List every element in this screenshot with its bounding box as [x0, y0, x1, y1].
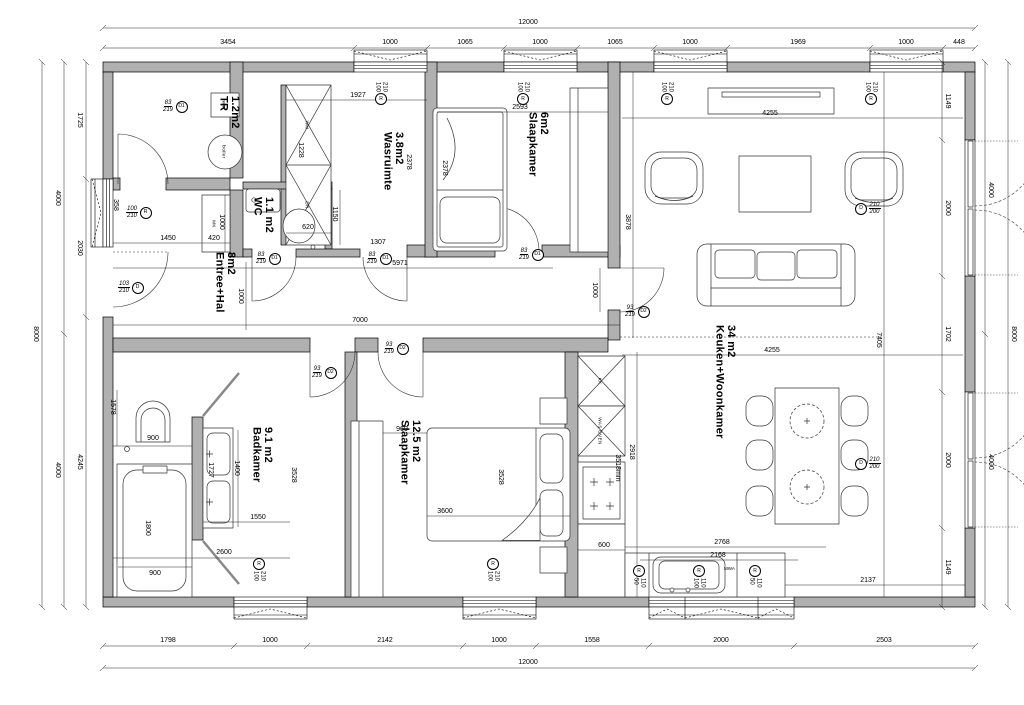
- door-tag-d1-wc: 83219 D1: [255, 252, 281, 265]
- dim-420: 420: [208, 235, 220, 242]
- door-d2-icon: D2: [638, 306, 650, 318]
- window-tag-slaapkamer1: 100210 R: [516, 82, 530, 105]
- armchair-right: [845, 152, 903, 206]
- dim-1578: 1578: [109, 399, 116, 415]
- door-d1-icon: D1: [269, 253, 281, 265]
- door-french-icon: D: [855, 203, 867, 215]
- dim-top-4: 1000: [532, 39, 548, 46]
- fixture-label-mwa: MWA: [724, 567, 735, 572]
- dim-right-1149a: 1149: [944, 93, 951, 108]
- dim-bottom-5: 1558: [584, 637, 600, 644]
- door-tag-d2-woonkamer: 93219 D2: [624, 305, 650, 318]
- fixture-label-wtw: wtw: [221, 101, 226, 110]
- dim-2137: 2137: [860, 577, 876, 584]
- toilet-badkamer: [125, 401, 171, 452]
- dim-bottom-1: 1798: [160, 637, 176, 644]
- dim-5971: 5971: [392, 260, 408, 267]
- dim-bottom-total: 12000: [518, 659, 537, 666]
- dim-top-2: 1000: [382, 39, 398, 46]
- dim-620: 620: [302, 224, 314, 231]
- dim-1800: 1800: [144, 520, 151, 536]
- kitchen-base-unit: [578, 524, 625, 597]
- room-label-badkamer: Badkamer9.1 m2: [250, 427, 273, 483]
- door-tag-french-1: D 210200: [855, 202, 881, 215]
- dim-left-4000a: 4000: [54, 190, 61, 206]
- dim-358: 358: [112, 199, 119, 211]
- window-tag-kitchen-2: 100110 R: [692, 565, 706, 588]
- dim-1150: 1150: [331, 206, 338, 221]
- dim-right-4000b: 4000: [987, 454, 994, 470]
- dim-2600: 2600: [216, 549, 232, 556]
- room-label-keuken-woonkamer: Keuken+Woonkamer34 m2: [713, 325, 736, 439]
- dim-1000-hal: 1000: [237, 288, 244, 304]
- dim-1727: 1727: [207, 462, 214, 478]
- dim-2168: 2168: [710, 552, 726, 559]
- dim-1000-living: 1000: [591, 282, 598, 298]
- dim-3518mm: 3518mm: [614, 454, 621, 481]
- window-r-icon: R: [661, 93, 673, 105]
- fixture-label-boiler: boiler: [221, 145, 226, 158]
- dim-right-2000b: 2000: [944, 452, 951, 468]
- window-tag-kitchen-3: 50110 R: [748, 565, 762, 588]
- dim-left-4245: 4245: [76, 454, 83, 470]
- fixture-label-wm: WM: [304, 121, 309, 130]
- window-tag-slaapkamer2: 100210 R: [486, 558, 500, 581]
- dim-bottom-2: 1000: [262, 637, 278, 644]
- room-label-wc: WC1.1 m2: [251, 197, 274, 233]
- dim-left-2030: 2030: [76, 240, 83, 256]
- coffee-table: [739, 156, 811, 212]
- dim-1550: 1550: [250, 514, 266, 521]
- dim-4255-top: 4255: [762, 110, 778, 117]
- fixture-label-dr: DR: [304, 201, 309, 208]
- door-d2-icon: D2: [397, 343, 409, 355]
- door-d1-icon: D1: [176, 101, 188, 113]
- window-tag-badkamer: 100210 R: [252, 558, 266, 581]
- dim-1927: 1927: [350, 92, 366, 99]
- dim-right-4000a: 4000: [987, 182, 994, 198]
- room-label-wasruimte: Wasruimte3.8m2: [381, 132, 404, 191]
- dim-7405: 7405: [875, 332, 882, 348]
- dim-2378-wasruimte: 2378: [405, 154, 412, 170]
- dim-3528-badkamer: 3528: [290, 467, 297, 483]
- window-tag-kitchen-1: 50110 R: [632, 565, 646, 588]
- window-r-icon: R: [487, 558, 499, 570]
- fixture-label-mk: MK: [211, 220, 216, 228]
- dim-2768: 2768: [714, 539, 730, 546]
- fixture-label-kk: KK: [597, 378, 602, 385]
- door-d2-icon: D2: [325, 367, 337, 379]
- room-label-entree-hal: Entree+Hal8m2: [213, 252, 236, 313]
- dim-top-1: 3454: [220, 39, 236, 46]
- window-r-icon: R: [693, 565, 705, 577]
- bathtub: [117, 464, 192, 597]
- dim-1307: 1307: [370, 239, 386, 246]
- dim-7000: 7000: [352, 317, 368, 324]
- window-r-icon: R: [140, 207, 152, 219]
- bed-double: [427, 398, 570, 573]
- dim-1000-mk: 1000: [218, 214, 225, 230]
- door-front-icon: D: [132, 282, 144, 294]
- dim-top-5: 1065: [607, 39, 623, 46]
- door-tag-d2-slaapkamer2: 93219 D2: [383, 342, 409, 355]
- dim-bottom-6: 2000: [713, 637, 729, 644]
- window-r-icon: R: [749, 565, 761, 577]
- dim-900-tub: 900: [149, 570, 161, 577]
- wardrobe-bed2: [351, 421, 383, 597]
- door-tag-front: 103210 D: [118, 281, 144, 294]
- dining-set: [746, 388, 868, 524]
- window-tag-woonkamer-1: 100210 R: [660, 82, 674, 105]
- window-r-icon: R: [865, 93, 877, 105]
- dim-left-1725: 1725: [76, 112, 83, 128]
- window-r-icon: R: [517, 93, 529, 105]
- sofa: [697, 244, 855, 306]
- door-d1-icon: D1: [532, 249, 544, 261]
- dim-1450: 1450: [160, 235, 176, 242]
- door-tag-d2-badkamer: 93219 D2: [311, 366, 337, 379]
- dim-2593: 2593: [512, 104, 528, 111]
- wardrobe-bed1: [570, 88, 608, 252]
- dim-3528-slaapkamer2: 3528: [497, 469, 504, 485]
- dim-top-3: 1065: [457, 39, 473, 46]
- dim-bottom-7: 2503: [876, 637, 892, 644]
- dim-600: 600: [598, 542, 610, 549]
- dim-top-total: 12000: [518, 19, 537, 26]
- window-r-icon: R: [633, 565, 645, 577]
- window-r-icon: R: [375, 93, 387, 105]
- dim-right-1702: 1702: [944, 326, 951, 342]
- dim-1228: 1228: [297, 142, 304, 158]
- dim-4255-mid: 4255: [764, 347, 780, 354]
- dim-969: 969: [396, 426, 408, 433]
- dim-2918: 2918: [628, 444, 635, 460]
- door-tag-d1-tr: 83219 D1: [162, 100, 188, 113]
- dim-right-8000: 8000: [1010, 326, 1017, 342]
- door-tag-d1-wasruimte: 83219 D1: [366, 252, 392, 265]
- dim-top-9: 448: [953, 39, 965, 46]
- dim-bottom-4: 1000: [491, 637, 507, 644]
- armchair-left: [645, 152, 703, 204]
- dim-2378-bed: 2378: [441, 160, 448, 176]
- dim-top-7: 1969: [790, 39, 806, 46]
- door-d1-icon: D1: [380, 253, 392, 265]
- window-r-icon: R: [253, 558, 265, 570]
- dim-left-4000b: 4000: [54, 462, 61, 478]
- window-tag-entree: 100210 R: [126, 206, 152, 219]
- dim-900-toilet: 900: [147, 435, 159, 442]
- dim-1400: 1400: [233, 460, 240, 476]
- dim-3600: 3600: [437, 508, 453, 515]
- door-tag-french-2: D 210200: [855, 457, 881, 470]
- room-label-slaapkamer1: Slaapkamer6m2: [526, 112, 549, 177]
- window-tag-woonkamer-2: 100210 R: [864, 82, 878, 105]
- dim-left-8000: 8000: [32, 326, 39, 342]
- dim-bottom-3: 2142: [377, 637, 393, 644]
- door-tag-d1-slaapkamer1: 83219 D1: [518, 248, 544, 261]
- dim-3878: 3878: [624, 214, 631, 230]
- dim-right-1149b: 1149: [944, 559, 951, 574]
- dim-right-2000a: 2000: [944, 200, 951, 216]
- dim-top-6: 1000: [682, 39, 698, 46]
- door-french-icon: D: [855, 458, 867, 470]
- fixture-label-was-oven: WAS OVEN: [597, 417, 602, 444]
- floorplan-page: TR1.2m2 Wasruimte3.8m2 WC1.1 m2 Slaapkam…: [0, 0, 1024, 705]
- window-tag-wasruimte: 100210 R: [374, 82, 388, 105]
- dim-top-8: 1000: [898, 39, 914, 46]
- bed-single: [433, 108, 507, 251]
